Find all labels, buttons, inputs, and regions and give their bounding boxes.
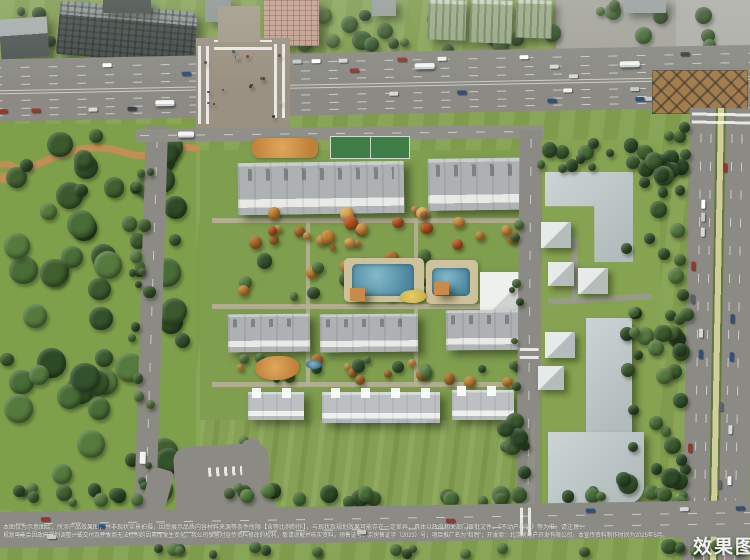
tree xyxy=(68,498,77,507)
tree xyxy=(648,340,664,356)
car xyxy=(569,74,578,78)
car xyxy=(719,402,723,411)
tree xyxy=(384,370,392,378)
car xyxy=(547,99,556,103)
tree xyxy=(237,364,244,371)
tree xyxy=(695,7,712,24)
tree xyxy=(478,365,487,374)
tree xyxy=(131,322,141,332)
car xyxy=(88,107,97,111)
car xyxy=(446,519,455,523)
tree xyxy=(312,547,323,558)
tree xyxy=(94,493,108,507)
car xyxy=(0,109,7,113)
tree xyxy=(146,400,155,409)
car xyxy=(723,163,727,172)
tree xyxy=(23,304,47,328)
tree xyxy=(674,314,685,325)
playground-north xyxy=(252,138,318,158)
tree xyxy=(509,287,515,293)
tree xyxy=(147,168,155,176)
tree xyxy=(635,27,652,44)
pedestrian xyxy=(246,55,249,58)
tree xyxy=(512,382,520,390)
building-top-gray-3 xyxy=(624,0,666,13)
tree xyxy=(77,430,105,458)
tree xyxy=(392,217,404,229)
tree xyxy=(74,184,87,197)
tree xyxy=(497,543,508,554)
tree xyxy=(131,493,144,506)
tree xyxy=(320,485,338,503)
car xyxy=(699,350,703,359)
tree xyxy=(649,416,663,430)
tree xyxy=(240,489,255,504)
park-trees xyxy=(0,128,196,506)
campus-trees xyxy=(612,150,690,506)
tree xyxy=(224,488,234,498)
pavilion-orange-2 xyxy=(350,288,365,301)
tree xyxy=(628,307,638,317)
tree xyxy=(164,196,187,219)
tree xyxy=(656,368,672,384)
tree xyxy=(109,488,123,502)
pedestrian xyxy=(279,101,282,104)
tree xyxy=(566,159,578,171)
lane-marking xyxy=(0,94,750,110)
tree xyxy=(651,463,662,474)
car xyxy=(635,97,644,101)
tree xyxy=(644,233,655,244)
tree xyxy=(67,210,95,238)
south-lawn-trees-right xyxy=(492,412,544,482)
tree xyxy=(135,281,142,288)
tree xyxy=(673,343,687,357)
tree xyxy=(657,487,672,502)
tree xyxy=(261,545,271,555)
car xyxy=(293,60,302,64)
tree xyxy=(129,269,137,277)
tree xyxy=(633,350,643,360)
bus xyxy=(155,100,174,106)
bus xyxy=(178,132,194,138)
pavilion-orange xyxy=(434,282,449,295)
pedestrians xyxy=(204,50,282,122)
crosswalk xyxy=(692,111,750,124)
car xyxy=(182,72,191,76)
tree xyxy=(9,256,37,284)
tree xyxy=(307,287,319,299)
tree xyxy=(104,177,124,197)
tree xyxy=(364,37,379,52)
campus-gable-5 xyxy=(538,366,564,390)
tree xyxy=(303,232,311,240)
tree xyxy=(20,159,33,172)
tree xyxy=(661,426,672,437)
tree xyxy=(89,129,103,143)
car xyxy=(128,107,137,111)
tree xyxy=(29,365,49,385)
pedestrian xyxy=(236,56,239,59)
tree xyxy=(514,220,524,230)
car xyxy=(389,92,398,96)
residential-slab-mid-2 xyxy=(320,314,418,353)
pedestrian xyxy=(278,54,281,57)
street-trees xyxy=(128,140,156,500)
tree xyxy=(268,207,280,219)
tree xyxy=(555,145,569,159)
tree xyxy=(40,203,57,220)
car xyxy=(643,97,652,101)
tree xyxy=(133,373,143,383)
tree xyxy=(352,359,365,372)
tree xyxy=(390,544,402,556)
tree xyxy=(658,248,670,260)
car xyxy=(41,517,50,521)
tree xyxy=(650,201,667,218)
tree xyxy=(511,338,518,345)
tree xyxy=(654,167,669,182)
tree xyxy=(17,7,25,15)
tower-green-3 xyxy=(515,0,552,39)
tree xyxy=(154,544,163,553)
tree xyxy=(377,23,394,40)
water-feature xyxy=(306,360,322,369)
tree xyxy=(40,259,68,287)
car xyxy=(563,88,572,92)
tree xyxy=(175,546,184,555)
tree xyxy=(138,268,145,275)
campus-gable-4 xyxy=(545,332,575,358)
tree xyxy=(95,349,113,367)
tree xyxy=(453,217,465,229)
disclaimer-line-2: 规划可能会因政府规划调整、或交付及开发商无法控制的因素而发生变化。我公司保留对宣… xyxy=(3,532,668,540)
aerial-render-canvas: 本图仅为示意图绘，所涉产品效果图，并非现状实景拍摄，因受展示品质内容材料来源等条… xyxy=(0,0,750,560)
car xyxy=(32,109,41,113)
intersection-plaza xyxy=(196,38,290,132)
car xyxy=(701,200,705,209)
tree xyxy=(0,353,13,366)
sports-court xyxy=(330,136,410,159)
crosswalk xyxy=(208,466,242,477)
tree xyxy=(542,142,557,157)
tree xyxy=(400,38,409,47)
tree xyxy=(511,487,527,503)
tree xyxy=(94,251,122,279)
building-topleft-white xyxy=(0,16,49,59)
tree xyxy=(238,285,249,296)
car xyxy=(680,52,689,56)
tree xyxy=(4,233,30,259)
tree xyxy=(169,234,181,246)
tree xyxy=(355,375,365,385)
pedestrian xyxy=(272,115,275,118)
tree xyxy=(675,543,685,553)
car xyxy=(438,57,447,61)
disclaimer-line-1: 本图仅为示意图绘，所涉产品效果图，并非现状实景拍摄，因受展示品质内容材料来源等条… xyxy=(3,524,585,532)
tree xyxy=(249,542,261,554)
car xyxy=(457,90,466,94)
pedestrian xyxy=(207,102,210,105)
tree xyxy=(28,491,39,502)
tree xyxy=(537,160,546,169)
tree xyxy=(257,253,273,269)
tree xyxy=(358,486,374,502)
car xyxy=(701,227,705,236)
tree xyxy=(512,279,521,288)
tree xyxy=(497,420,514,437)
tree xyxy=(509,361,518,370)
car xyxy=(519,55,528,59)
tree xyxy=(621,363,635,377)
tree-belt-bottom-edge xyxy=(0,540,750,560)
tree xyxy=(392,361,404,373)
tree xyxy=(261,484,274,497)
tree xyxy=(88,397,110,419)
pedestrian xyxy=(207,91,209,93)
car xyxy=(728,426,732,435)
car xyxy=(311,59,320,63)
tree xyxy=(4,394,33,423)
play-blob-yellow xyxy=(400,290,426,303)
tree xyxy=(518,466,531,479)
tree xyxy=(664,437,682,455)
tree xyxy=(209,550,218,559)
tree xyxy=(629,327,640,338)
car xyxy=(549,65,558,69)
car xyxy=(339,59,348,63)
pedestrian xyxy=(213,103,215,105)
tree xyxy=(88,278,110,300)
tree xyxy=(460,549,471,560)
car xyxy=(735,506,744,510)
campus-gable-2 xyxy=(548,262,574,286)
tree xyxy=(175,333,190,348)
tree xyxy=(89,307,112,330)
bus xyxy=(415,63,435,69)
tree xyxy=(588,138,599,149)
car xyxy=(630,87,639,91)
tree xyxy=(52,464,72,484)
lowrise-south-2 xyxy=(322,392,440,423)
tree xyxy=(143,286,155,298)
tree xyxy=(475,231,485,241)
car xyxy=(701,213,705,222)
tree xyxy=(596,492,606,502)
bus xyxy=(620,61,640,67)
tree xyxy=(293,492,307,506)
tree xyxy=(269,235,279,245)
tree xyxy=(639,177,650,188)
tree xyxy=(321,230,335,244)
tree xyxy=(326,34,340,48)
car xyxy=(585,509,594,513)
plaza-north-path xyxy=(218,6,260,42)
tree xyxy=(420,222,432,234)
pedestrian xyxy=(232,50,235,53)
tree xyxy=(356,223,368,235)
tree xyxy=(510,233,520,243)
tree xyxy=(516,298,524,306)
building-top-gray-2 xyxy=(372,0,396,16)
tree xyxy=(74,150,93,169)
pedestrian xyxy=(249,85,252,88)
tree xyxy=(138,219,150,231)
tree xyxy=(47,132,73,158)
tower-green-2 xyxy=(469,0,512,44)
tree xyxy=(562,490,574,502)
tree xyxy=(679,122,691,134)
tree xyxy=(161,298,187,324)
car xyxy=(398,57,407,61)
tree xyxy=(134,391,145,402)
tree xyxy=(676,454,687,465)
pedestrian xyxy=(204,61,207,64)
tree xyxy=(341,16,358,33)
tree xyxy=(628,442,638,452)
tree xyxy=(312,262,324,274)
pedestrian xyxy=(222,89,224,91)
car xyxy=(680,507,689,511)
rendering-watermark-label: 效果图 xyxy=(693,532,750,559)
building-top-edge xyxy=(103,0,151,13)
tree xyxy=(444,373,455,384)
tree xyxy=(596,7,604,15)
tree xyxy=(420,366,433,379)
tree xyxy=(359,10,370,21)
tree xyxy=(579,547,589,557)
tree xyxy=(621,243,632,254)
tree xyxy=(388,38,399,49)
tower-green-1 xyxy=(427,0,466,41)
tree xyxy=(290,292,299,301)
tree xyxy=(402,549,412,559)
lowrise-south-1 xyxy=(248,392,304,420)
car xyxy=(730,314,734,323)
residential-slab-mid-1 xyxy=(228,314,310,353)
tree xyxy=(628,405,639,416)
tree xyxy=(609,0,620,11)
car xyxy=(350,68,359,72)
playground-central xyxy=(255,356,299,380)
campus-gable-3 xyxy=(578,268,608,294)
car xyxy=(699,328,703,337)
car xyxy=(730,352,734,361)
tree xyxy=(128,334,136,342)
car xyxy=(102,63,111,67)
tree xyxy=(588,163,596,171)
campus-gable-1 xyxy=(541,222,571,248)
tree xyxy=(420,211,427,218)
tree xyxy=(239,354,249,364)
tree xyxy=(408,359,416,367)
tree xyxy=(137,169,146,178)
tree xyxy=(130,250,142,262)
tree xyxy=(658,187,668,197)
tree xyxy=(268,226,277,235)
